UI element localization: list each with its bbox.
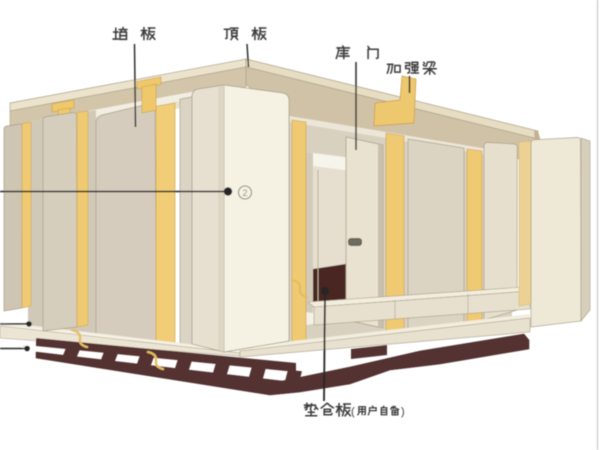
svg-text:(: ( (351, 406, 355, 418)
svg-text:2: 2 (242, 188, 247, 198)
svg-text:): ) (401, 406, 405, 418)
